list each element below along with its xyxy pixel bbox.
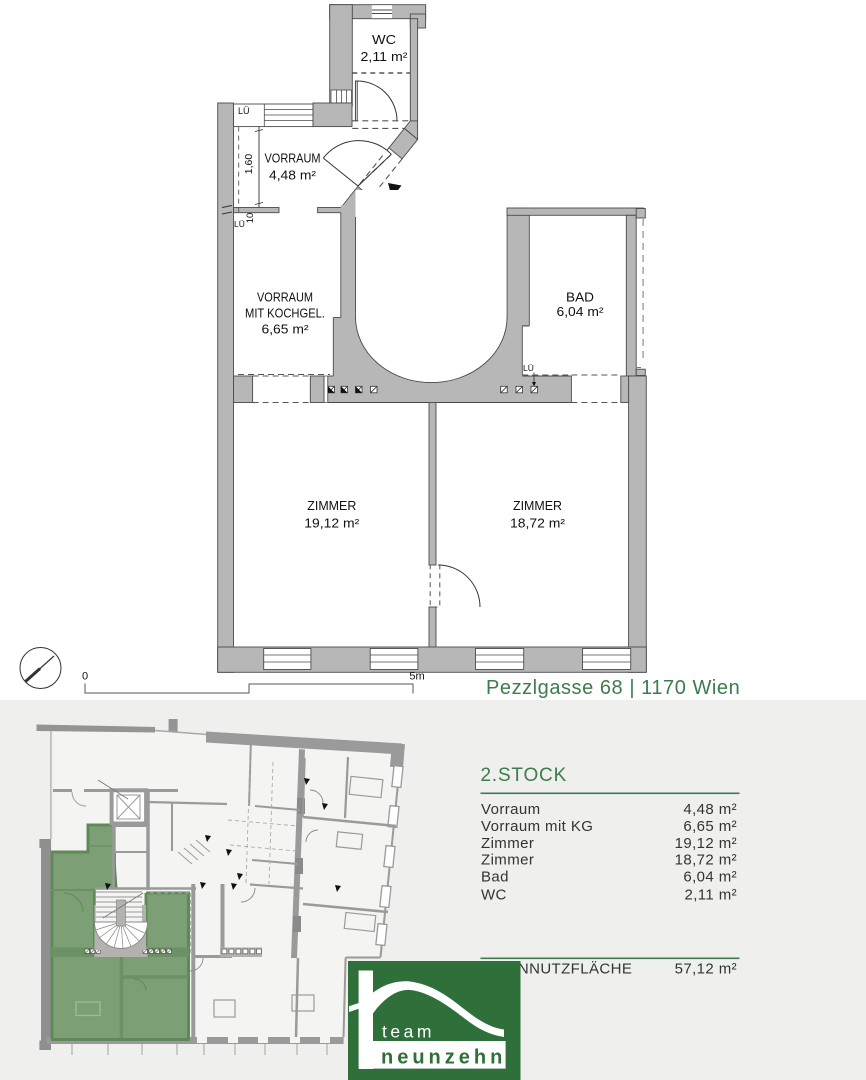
svg-text:WC: WC [481, 887, 507, 904]
svg-text:LÜ: LÜ [238, 106, 250, 116]
svg-text:VORRAUM: VORRAUM [265, 152, 321, 166]
svg-text:0: 0 [82, 671, 88, 683]
svg-text:Zimmer: Zimmer [481, 835, 534, 852]
svg-text:6,65 m²: 6,65 m² [683, 818, 737, 835]
svg-text:2,11 m²: 2,11 m² [684, 887, 737, 904]
svg-text:2,11 m²: 2,11 m² [361, 50, 408, 64]
svg-text:19,12 m²: 19,12 m² [304, 517, 359, 531]
svg-text:LÜ: LÜ [234, 219, 245, 229]
svg-text:Zimmer: Zimmer [481, 852, 534, 869]
svg-text:neunzehn: neunzehn [381, 1047, 506, 1069]
svg-text:Vorraum: Vorraum [481, 801, 541, 818]
svg-text:2.STOCK: 2.STOCK [481, 765, 568, 786]
svg-text:6,04 m²: 6,04 m² [557, 305, 604, 319]
svg-text:ZIMMER: ZIMMER [513, 499, 562, 513]
svg-text:4,48 m²: 4,48 m² [269, 169, 316, 183]
svg-text:BAD: BAD [566, 291, 594, 305]
svg-text:LÜ: LÜ [523, 363, 534, 373]
svg-text:57,12 m²: 57,12 m² [675, 961, 737, 978]
svg-text:10: 10 [245, 213, 256, 224]
svg-text:team: team [382, 1022, 435, 1042]
svg-text:Bad: Bad [481, 869, 509, 886]
svg-text:4,48 m²: 4,48 m² [683, 801, 737, 818]
svg-text:VORRAUM: VORRAUM [257, 291, 313, 305]
svg-text:1,60: 1,60 [243, 154, 255, 175]
svg-text:19,12 m²: 19,12 m² [675, 835, 737, 852]
svg-text:18,72 m²: 18,72 m² [675, 852, 737, 869]
svg-text:6,65 m²: 6,65 m² [262, 323, 309, 337]
svg-text:ZIMMER: ZIMMER [307, 499, 356, 513]
svg-text:5m: 5m [409, 671, 424, 683]
svg-text:Vorraum mit KG: Vorraum mit KG [481, 818, 593, 835]
svg-text:WC: WC [372, 33, 396, 47]
svg-text:Pezzlgasse 68 | 1170 Wien: Pezzlgasse 68 | 1170 Wien [486, 677, 740, 699]
svg-text:MIT KOCHGEL.: MIT KOCHGEL. [245, 307, 325, 321]
svg-text:6,04 m²: 6,04 m² [683, 869, 737, 886]
svg-text:18,72 m²: 18,72 m² [510, 517, 565, 531]
